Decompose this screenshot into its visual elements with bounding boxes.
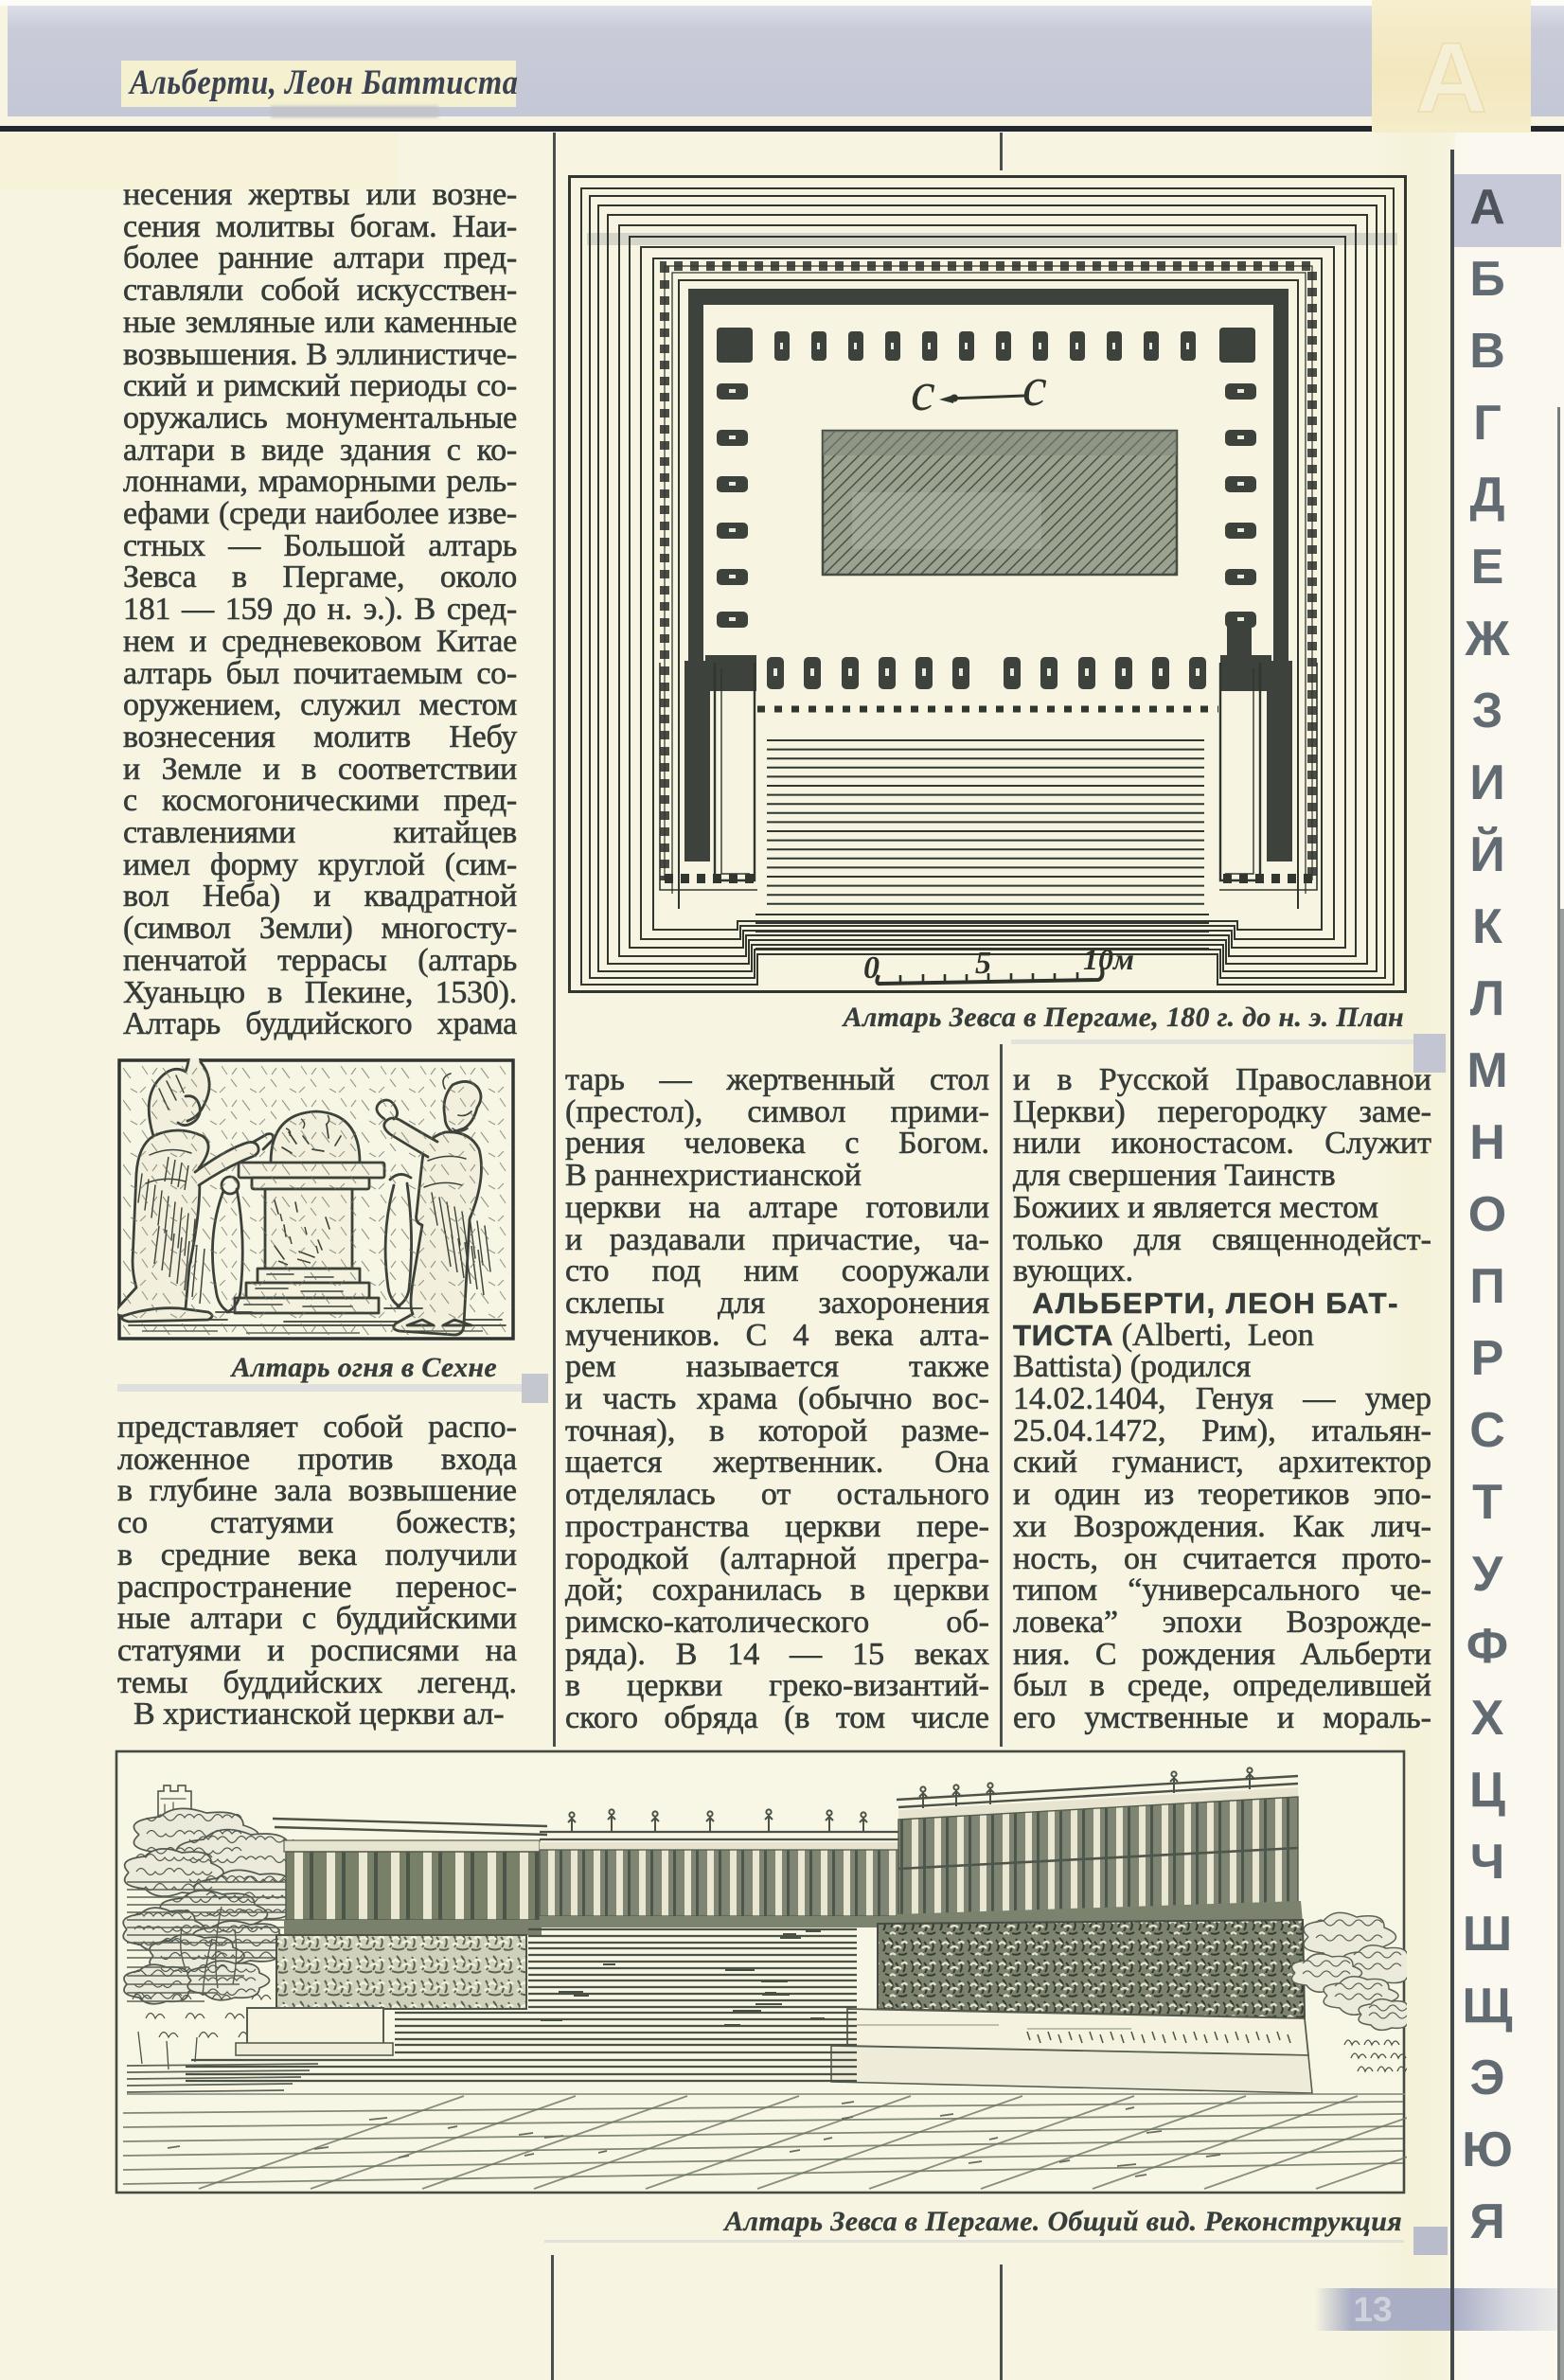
- svg-text:10м: 10м: [1083, 942, 1134, 976]
- svg-text:c: c: [911, 361, 935, 422]
- svg-text:c: c: [1022, 356, 1047, 417]
- svg-text:0: 0: [863, 950, 880, 986]
- svg-text:5: 5: [975, 946, 991, 981]
